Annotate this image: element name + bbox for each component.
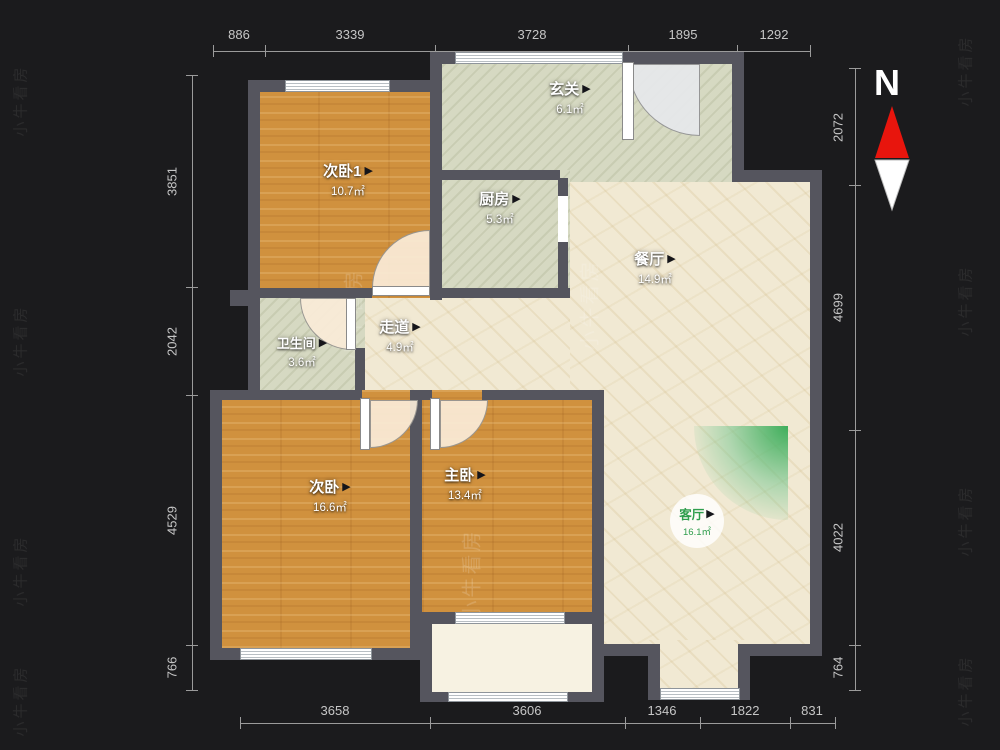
dim-label: 4022 xyxy=(831,508,846,568)
room-area: 16.6㎡ xyxy=(313,499,347,515)
dim-label: 2072 xyxy=(831,98,846,158)
room-arrow-icon: ▶ xyxy=(412,320,420,333)
room-label-bedroom2[interactable]: 次卧▶ 16.6㎡ xyxy=(260,476,400,515)
dim-label: 1895 xyxy=(643,27,723,42)
room-label-kitchen[interactable]: 厨房▶ 5.3㎡ xyxy=(440,188,560,227)
dim-label: 4529 xyxy=(165,491,180,551)
wall-segment xyxy=(442,170,560,180)
wall-segment xyxy=(210,390,222,660)
room-arrow-icon: ▶ xyxy=(667,252,675,265)
bedroom2-door-leaf xyxy=(360,398,370,450)
dim-label: 2042 xyxy=(165,312,180,372)
dim-label: 3606 xyxy=(487,703,567,718)
room-area: 10.7㎡ xyxy=(331,183,365,199)
wall-segment xyxy=(210,390,362,400)
room-arrow-icon: ▶ xyxy=(477,468,485,481)
dim-label: 4699 xyxy=(831,278,846,338)
room-arrow-icon: ▶ xyxy=(512,192,520,205)
dim-label: 886 xyxy=(199,27,279,42)
wall-segment xyxy=(750,644,822,656)
room-name: 走道 xyxy=(379,316,409,337)
wall-segment xyxy=(592,390,604,612)
dim-label: 3728 xyxy=(492,27,572,42)
brand-watermark: 小牛看房 xyxy=(955,11,976,131)
brand-watermark: 小牛看房 xyxy=(10,511,31,631)
room-name: 玄关 xyxy=(549,78,579,99)
room-arrow-icon: ▶ xyxy=(706,507,714,520)
room-area: 16.1㎡ xyxy=(683,524,711,538)
window xyxy=(285,80,390,92)
window xyxy=(240,648,372,660)
wall-segment xyxy=(430,52,442,300)
room-area: 3.6㎡ xyxy=(288,354,316,370)
room-name: 次卧1 xyxy=(323,160,361,181)
room-arrow-icon: ▶ xyxy=(319,336,327,349)
brand-watermark: 小牛看房 xyxy=(10,41,31,161)
dim-label: 831 xyxy=(772,703,852,718)
room-name: 餐厅 xyxy=(634,248,664,269)
wall-segment xyxy=(248,80,260,300)
room-area: 5.3㎡ xyxy=(486,211,514,227)
dim-label: 766 xyxy=(165,638,180,698)
dim-label: 1292 xyxy=(734,27,814,42)
room-name: 主卧 xyxy=(444,464,474,485)
window xyxy=(455,52,623,64)
wall-segment xyxy=(592,612,604,702)
brand-watermark: 小牛看房 xyxy=(10,281,31,401)
balcony-floor xyxy=(420,612,604,700)
brand-watermark: 小牛看房 xyxy=(955,461,976,581)
wall-segment xyxy=(230,290,248,306)
wall-segment xyxy=(410,390,422,660)
room-name: 客厅 xyxy=(679,504,704,523)
room-name: 卫生间 xyxy=(277,333,316,352)
room-label-bedroom1[interactable]: 次卧1▶ 10.7㎡ xyxy=(278,160,418,199)
room-area: 14.9㎡ xyxy=(638,271,672,287)
wall-segment xyxy=(732,170,822,182)
window xyxy=(660,688,740,700)
brand-watermark: 小牛看房 xyxy=(955,241,976,361)
bedroom1-door-leaf xyxy=(372,286,430,296)
dim-label: 3658 xyxy=(295,703,375,718)
room-arrow-icon: ▶ xyxy=(582,82,590,95)
wall-segment xyxy=(248,288,372,298)
wall-segment xyxy=(558,242,568,288)
floor-plan-canvas: 小牛看房 小牛看房 小牛看房 小牛看房 小牛看房 小牛看房 小牛看房 小牛看房 … xyxy=(0,0,1000,750)
dim-label: 764 xyxy=(831,638,846,698)
room-arrow-icon: ▶ xyxy=(342,480,350,493)
room-label-entry[interactable]: 玄关▶ 6.1㎡ xyxy=(500,78,640,117)
room-label-master[interactable]: 主卧▶ 13.4㎡ xyxy=(395,464,535,503)
window xyxy=(455,612,565,624)
room-label-living[interactable]: 客厅▶ 16.1㎡ xyxy=(670,494,724,548)
wall-segment xyxy=(482,390,602,400)
dim-label: 3851 xyxy=(165,152,180,212)
brand-watermark: 小牛看房 xyxy=(10,641,31,750)
room-area: 4.9㎡ xyxy=(386,339,414,355)
compass-north-label: N xyxy=(874,62,900,104)
dim-label: 1346 xyxy=(622,703,702,718)
room-area: 13.4㎡ xyxy=(448,487,482,503)
room-label-dining[interactable]: 餐厅▶ 14.9㎡ xyxy=(585,248,725,287)
compass-needle-icon xyxy=(872,106,912,212)
room-area: 6.1㎡ xyxy=(556,101,584,117)
dim-label: 3339 xyxy=(310,27,390,42)
brand-watermark: 小牛看房 xyxy=(955,631,976,750)
room-name: 次卧 xyxy=(309,476,339,497)
room-label-bathroom[interactable]: 卫生间▶ 3.6㎡ xyxy=(242,333,362,370)
window xyxy=(448,692,568,702)
wall-segment xyxy=(810,170,822,656)
wall-segment xyxy=(430,288,570,298)
master-door-leaf xyxy=(430,398,440,450)
room-name: 厨房 xyxy=(479,188,509,209)
wall-segment xyxy=(732,52,744,182)
room-arrow-icon: ▶ xyxy=(364,164,372,177)
